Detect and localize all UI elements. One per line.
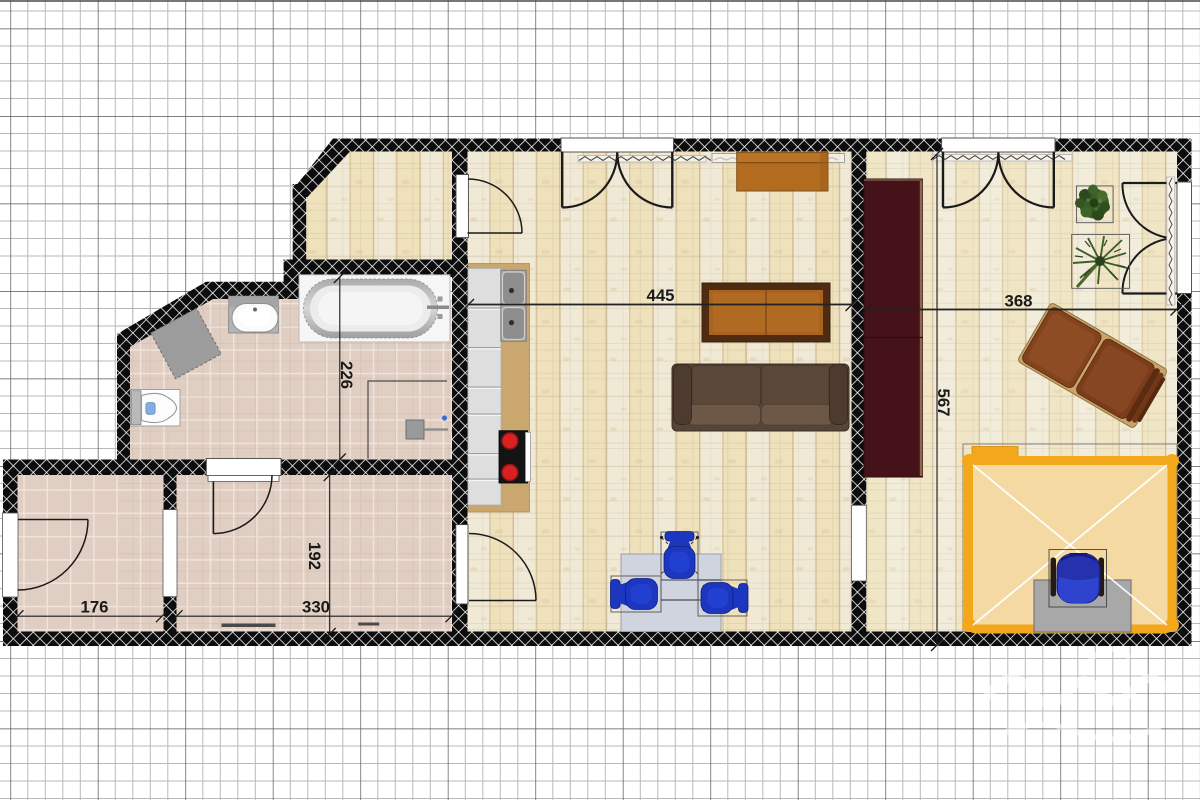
svg-text:567: 567 — [934, 389, 953, 417]
svg-text:176: 176 — [81, 598, 109, 617]
svg-text:192: 192 — [305, 542, 324, 570]
svg-text:226: 226 — [337, 361, 356, 389]
svg-text:368: 368 — [1005, 292, 1033, 311]
svg-text:330: 330 — [302, 598, 330, 617]
svg-text:445: 445 — [647, 286, 675, 305]
